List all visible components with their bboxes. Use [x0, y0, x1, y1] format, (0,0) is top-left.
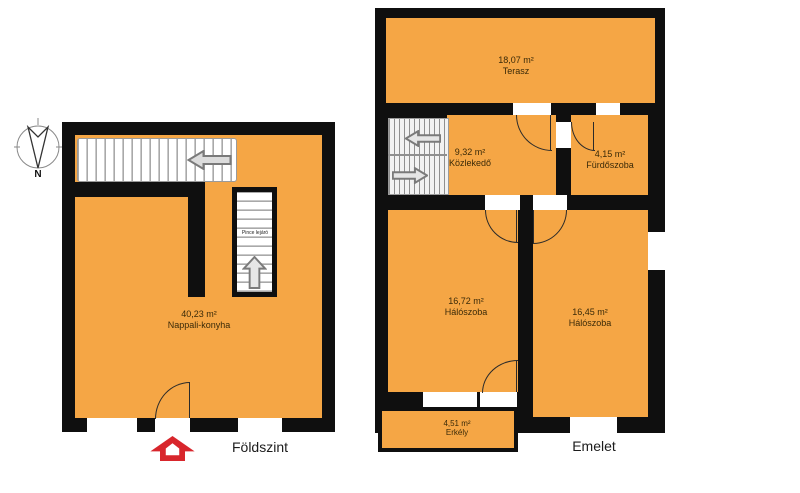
- stairs-arrow-right-icon: [392, 167, 428, 184]
- stairs-arrow-left-icon: [405, 130, 441, 147]
- stairs-left-arrow-icon: [187, 150, 232, 170]
- room-area: 18,07 m²: [498, 55, 534, 66]
- ground-entrance-door-leaf: [189, 382, 190, 418]
- room-name: Erkély: [443, 428, 470, 437]
- compass-needle: [28, 127, 48, 168]
- window-haloszoba-2-bottom: [570, 417, 617, 433]
- door-leaf-haloszoba-2: [533, 210, 534, 243]
- room-name: Nappali-konyha: [168, 320, 231, 331]
- room-area: 4,51 m²: [443, 419, 470, 428]
- room-name: Terasz: [498, 66, 534, 77]
- ground-window-left: [87, 418, 137, 432]
- door-leaf-erkely: [516, 360, 517, 392]
- door-leaf-kozlekedo-furdoszoba: [593, 122, 594, 150]
- upper-stairs-divider: [388, 154, 447, 156]
- upper-floor-caption: Emelet: [572, 438, 616, 454]
- room-area: 40,23 m²: [168, 309, 231, 320]
- ground-entrance-door-opening: [155, 418, 190, 432]
- room-label-nappali-konyha: 40,23 m² Nappali-konyha: [168, 309, 231, 331]
- room-label-erkely: 4,51 m² Erkély: [443, 419, 470, 437]
- door-leaf-haloszoba-1: [516, 210, 517, 242]
- door-opening-haloszoba-2: [533, 195, 567, 210]
- room-label-terasz: 18,07 m² Terasz: [498, 55, 534, 77]
- ground-interior-wall-vertical: [188, 182, 205, 297]
- room-name: Közlekedő: [449, 158, 491, 169]
- door-opening-haloszoba-1: [485, 195, 520, 210]
- entrance-arrow-icon: [150, 436, 195, 461]
- room-area: 16,45 m²: [569, 307, 612, 318]
- floorplan-canvas: N Pince lejáró 40,23 m² Nappali-konyha: [0, 0, 800, 493]
- ground-interior-wall-horizontal: [72, 182, 203, 197]
- window-terasz-furdoszoba: [596, 103, 620, 115]
- upper-floor-plan: 18,07 m² Terasz 9,32 m² Közlekedő 4,15 m…: [375, 8, 665, 453]
- room-area: 9,32 m²: [449, 147, 491, 158]
- room-name: Fürdőszoba: [586, 160, 634, 171]
- door-opening-erkely: [480, 392, 517, 407]
- room-label-haloszoba-2: 16,45 m² Hálószoba: [569, 307, 612, 329]
- door-opening-kozlekedo-furdoszoba: [556, 122, 571, 148]
- stairs-up-arrow-icon: [242, 256, 267, 289]
- room-label-furdoszoba: 4,15 m² Fürdőszoba: [586, 149, 634, 171]
- room-name: Hálószoba: [569, 318, 612, 329]
- room-area: 4,15 m²: [586, 149, 634, 160]
- room-name: Hálószoba: [445, 307, 488, 318]
- ground-window-right: [238, 418, 282, 432]
- compass-icon: N: [12, 118, 64, 180]
- ground-stair-label: Pince lejáró: [242, 230, 268, 236]
- window-haloszoba-1-bottom: [423, 392, 477, 407]
- north-label: N: [34, 169, 41, 180]
- room-area: 16,72 m²: [445, 296, 488, 307]
- ground-floor-caption: Földszint: [232, 439, 288, 455]
- window-haloszoba-2-right: [648, 232, 665, 270]
- ground-floor-plan: Pince lejáró 40,23 m² Nappali-konyha: [62, 122, 335, 432]
- room-label-kozlekedo: 9,32 m² Közlekedő: [449, 147, 491, 169]
- door-leaf-terasz-kozlekedo: [550, 115, 551, 150]
- room-label-haloszoba-1: 16,72 m² Hálószoba: [445, 296, 488, 318]
- door-opening-terasz-kozlekedo: [513, 103, 551, 115]
